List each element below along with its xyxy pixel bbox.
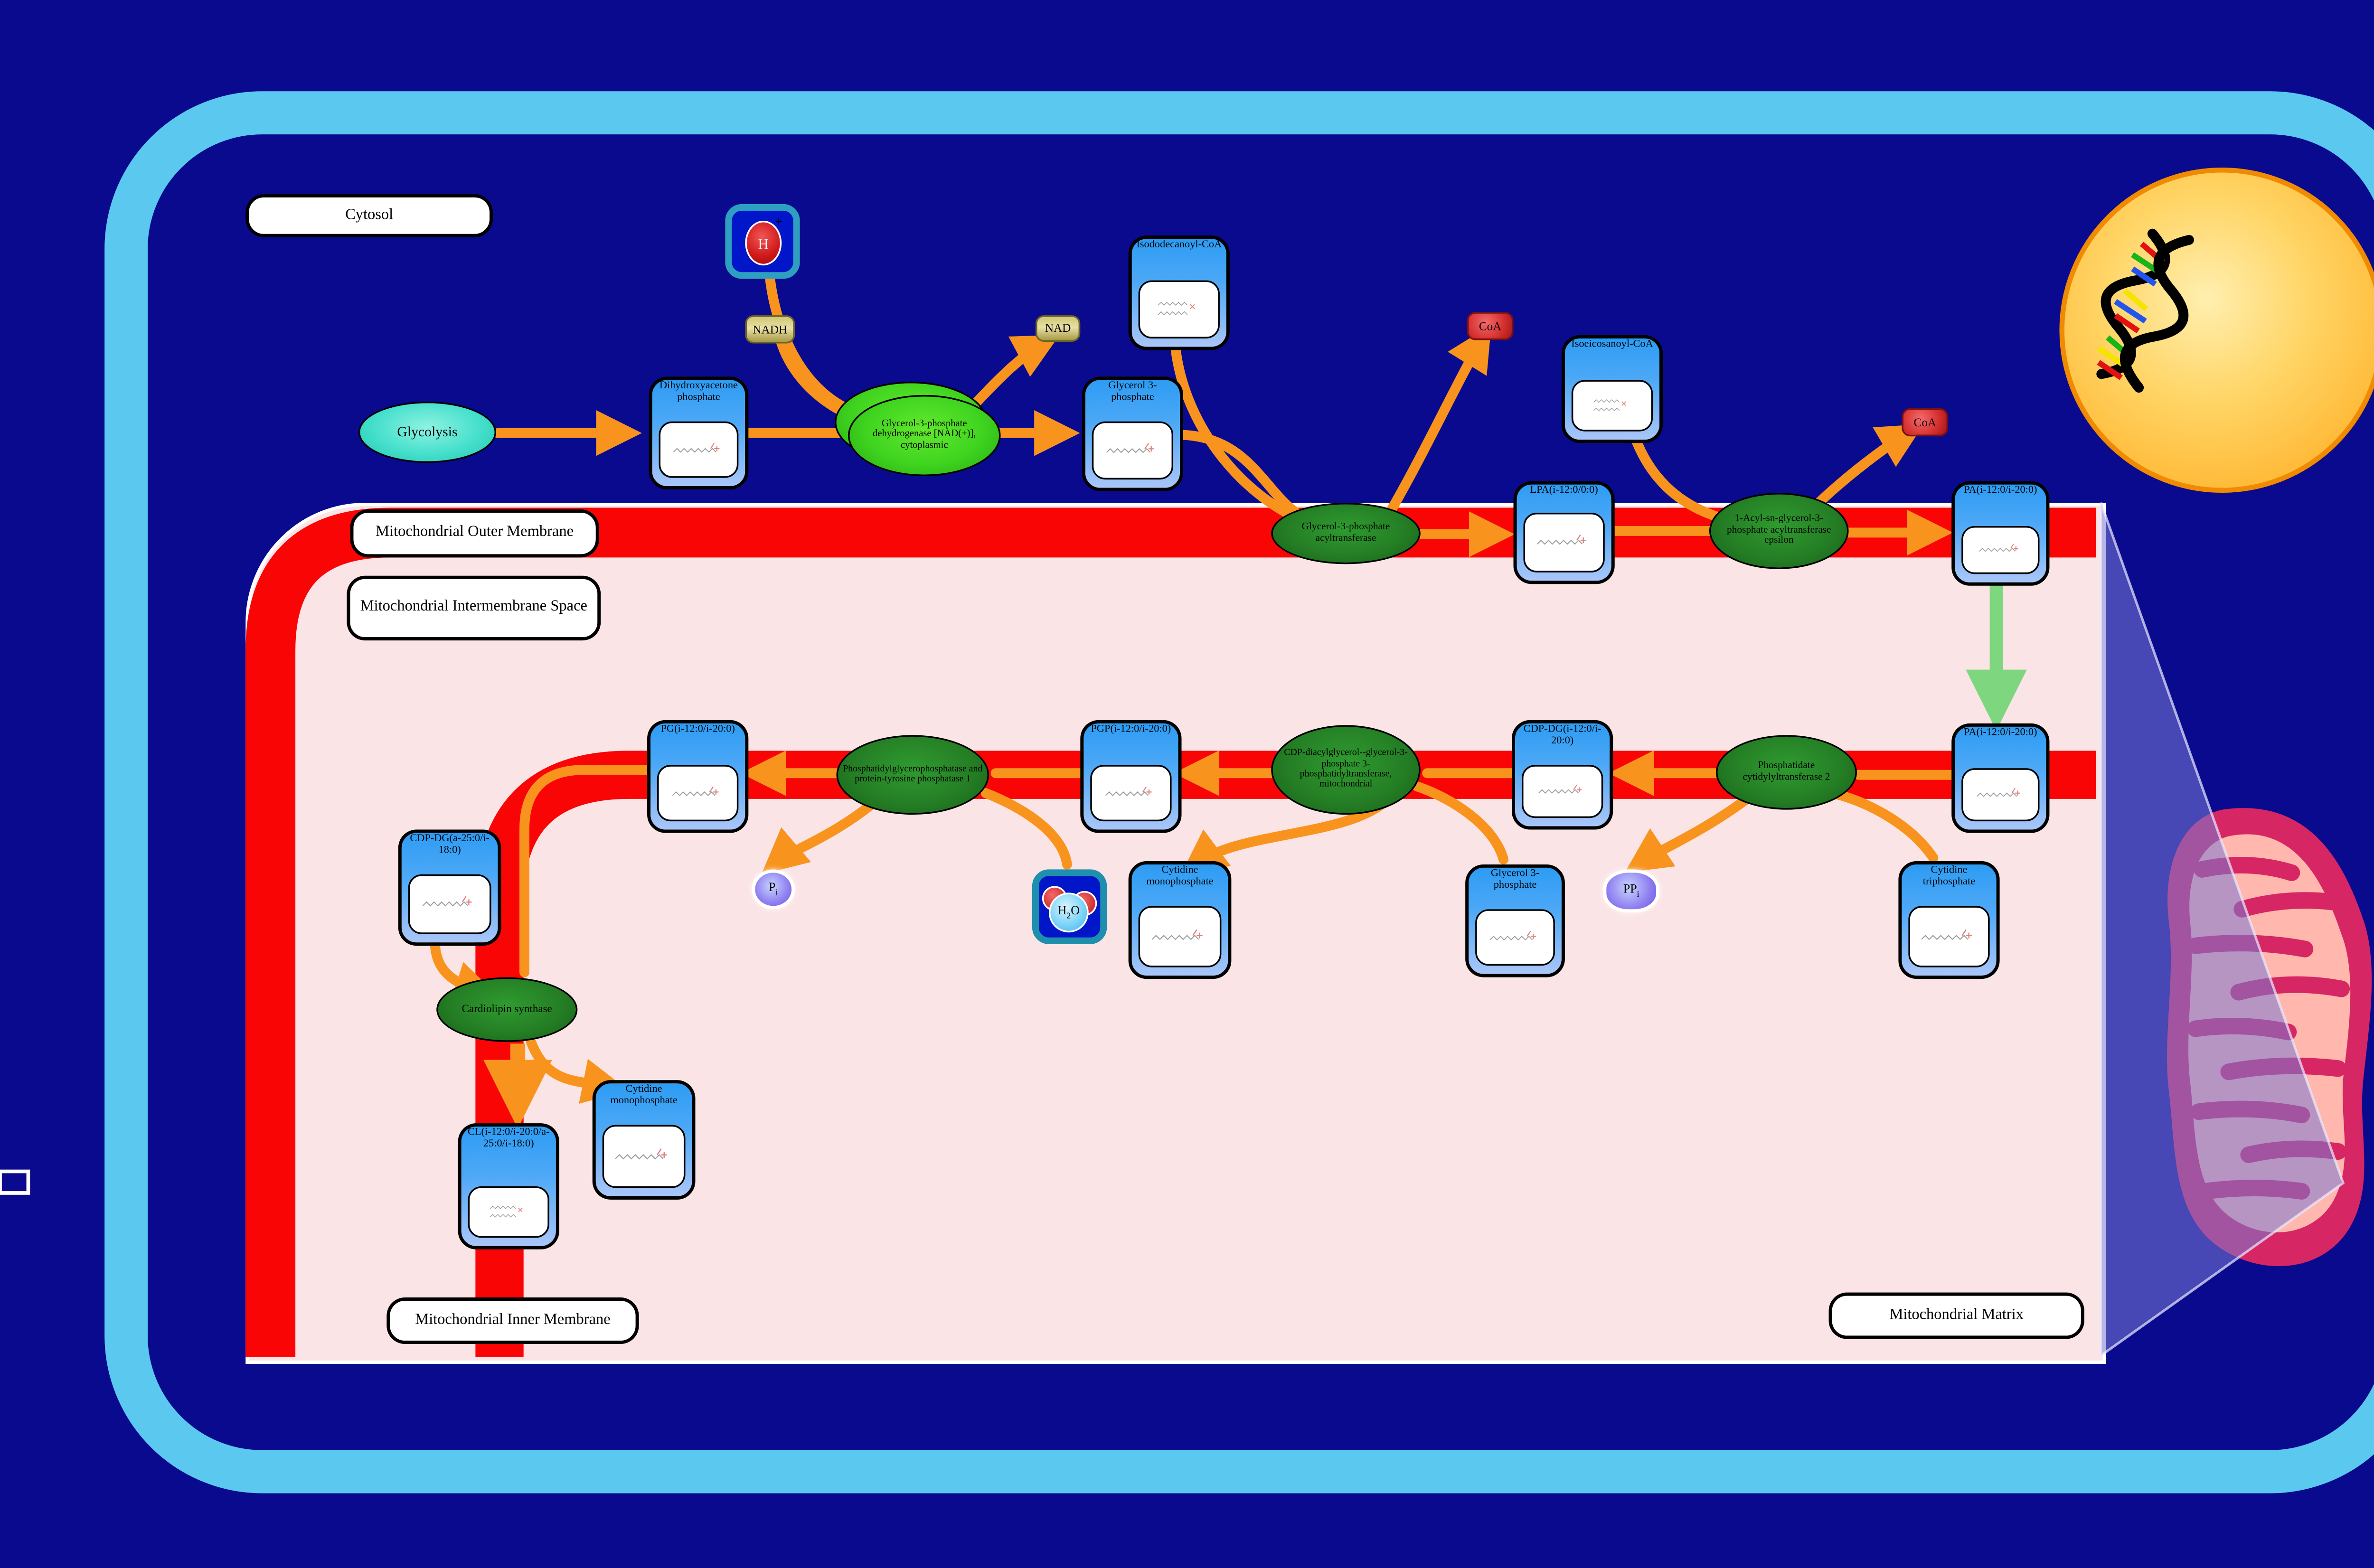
structure-image	[415, 893, 484, 916]
label-cytosol: Cytosol	[245, 194, 493, 237]
arrow-pg-to-cls	[524, 770, 647, 972]
arrow-g3p-to-cdpdgs	[1417, 787, 1504, 860]
label-outer-membrane: Mitochondrial Outer Membrane	[350, 509, 599, 557]
metabolite-dhap[interactable]: Dihydroxyacetone phosphate	[649, 376, 749, 489]
structure-image	[666, 439, 731, 460]
node-glycolysis[interactable]: Glycolysis	[358, 402, 496, 463]
metabolite-g3p-top[interactable]: Glycerol 3-phosphate	[1082, 376, 1183, 491]
metabolite-cmp-mid[interactable]: Cytidine monophosphate	[1129, 861, 1232, 979]
proton-icon[interactable]: H +	[725, 204, 800, 279]
metabolite-pa-top[interactable]: PA(i-12:0/i-20:0)	[1951, 481, 2049, 586]
metabolite-lpa[interactable]: LPA(i-12:0/0:0)	[1514, 481, 1615, 584]
enzyme-cardiolipin-synthase[interactable]: Cardiolipin synthase	[436, 977, 577, 1042]
arrow-pgpase-to-pi	[775, 805, 871, 863]
arrow-h2o-to-pgpase	[986, 793, 1067, 864]
structure-image	[1099, 440, 1166, 461]
cofactor-coa-1[interactable]: CoA	[1467, 312, 1514, 340]
arrow-pcyt2-to-ppi	[1639, 800, 1746, 863]
enzyme-gpd[interactable]: Glycerol-3-phosphate dehydrogenase [NAD(…	[835, 382, 1001, 476]
arrow-isoeicosanoyl-to-agpat	[1635, 436, 1726, 519]
structure-image	[1579, 396, 1646, 415]
molecule-ppi[interactable]: PPi	[1603, 869, 1659, 912]
arrow-ctp-to-pcyt2	[1832, 793, 1933, 858]
arrow-cls-to-cmp	[531, 1042, 611, 1087]
enzyme-gpat[interactable]: Glycerol-3-phosphate acyltransferase	[1271, 503, 1421, 564]
structure-image	[1969, 541, 2033, 559]
metabolite-cl[interactable]: CL(i-12:0/i-20:0/a-25:0/i-18:0)	[458, 1123, 559, 1249]
water-icon[interactable]: H2O	[1032, 869, 1107, 944]
metabolite-pgp[interactable]: PGP(i-12:0/i-20:0)	[1080, 720, 1181, 833]
structure-image	[1529, 781, 1596, 801]
metabolite-cdp-dg-a[interactable]: CDP-DG(a-25:0/i-18:0)	[398, 830, 501, 946]
metabolite-pg[interactable]: PG(i-12:0/i-20:0)	[647, 720, 748, 833]
arrow-gpat-to-coa	[1391, 340, 1482, 511]
enzyme-pgp-phosphatase[interactable]: Phosphatidylglycerophosphatase and prote…	[837, 735, 989, 815]
structure-image	[1146, 925, 1214, 948]
label-inner-membrane: Mitochondrial Inner Membrane	[386, 1297, 639, 1344]
structure-image	[1969, 785, 2033, 805]
pathway-canvas: Cytosol Mitochondrial Outer Membrane Mit…	[0, 0, 2374, 1568]
arrow-agpat-to-coa	[1819, 433, 1909, 503]
metabolite-cdp-dg[interactable]: CDP-DG(i-12:0/i-20:0)	[1512, 720, 1613, 830]
structure-image	[1097, 782, 1164, 804]
structure-image	[610, 1145, 678, 1168]
label-matrix: Mitochondrial Matrix	[1829, 1293, 2084, 1339]
structure-image	[1531, 531, 1598, 554]
metabolite-ctp[interactable]: Cytidine triphosphate	[1898, 861, 1999, 979]
cofactor-nad[interactable]: NAD	[1036, 315, 1080, 342]
enzyme-pcyt2[interactable]: Phosphatidate cytidylyltransferase 2	[1716, 735, 1857, 809]
molecule-pi[interactable]: Pi	[752, 869, 795, 909]
metabolite-isododecanoyl-coa[interactable]: Isododecanoyl-CoA	[1129, 235, 1230, 350]
metabolite-isoeicosanoyl-coa[interactable]: Isoeicosanoyl-CoA	[1562, 335, 1663, 443]
metabolite-pa-mid[interactable]: PA(i-12:0/i-20:0)	[1951, 723, 2049, 833]
enzyme-agpat-epsilon[interactable]: 1-Acyl-sn-glycerol-3-phosphate acyltrans…	[1709, 493, 1849, 569]
structure-image	[1146, 299, 1213, 320]
structure-image	[1915, 925, 1982, 948]
label-intermembrane-space: Mitochondrial Intermembrane Space	[347, 576, 601, 640]
structure-image	[1482, 927, 1548, 948]
cofactor-nadh[interactable]: NADH	[745, 315, 795, 343]
structure-image	[475, 1202, 542, 1222]
metabolite-cmp-left[interactable]: Cytidine monophosphate	[593, 1080, 696, 1200]
metabolite-g3p-bottom[interactable]: Glycerol 3-phosphate	[1465, 864, 1565, 977]
structure-image	[664, 782, 731, 804]
enzyme-cdp-dgs[interactable]: CDP-diacylglycerol--glycerol-3-phosphate…	[1271, 725, 1421, 815]
cofactor-coa-2[interactable]: CoA	[1902, 408, 1948, 436]
